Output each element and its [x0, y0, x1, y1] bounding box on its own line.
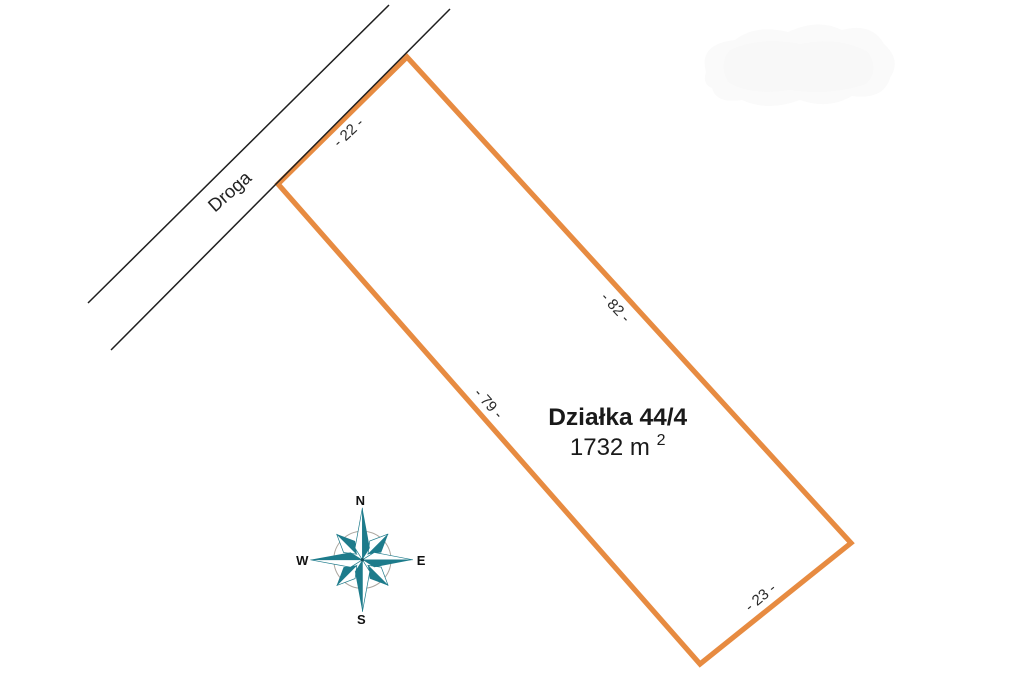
- svg-text:- 79 -: - 79 -: [470, 385, 506, 422]
- svg-text:Działka 44/4: Działka 44/4: [548, 404, 687, 431]
- svg-text:S: S: [357, 612, 366, 627]
- svg-text:W: W: [296, 553, 309, 568]
- svg-text:1732 m 2: 1732 m 2: [570, 432, 666, 461]
- svg-text:- 23 -: - 23 -: [742, 580, 780, 616]
- svg-text:- 22 -: - 22 -: [330, 114, 367, 150]
- svg-text:Droga: Droga: [204, 166, 256, 216]
- svg-text:- 82 -: - 82 -: [597, 289, 633, 326]
- svg-text:N: N: [356, 493, 365, 508]
- svg-text:E: E: [417, 553, 426, 568]
